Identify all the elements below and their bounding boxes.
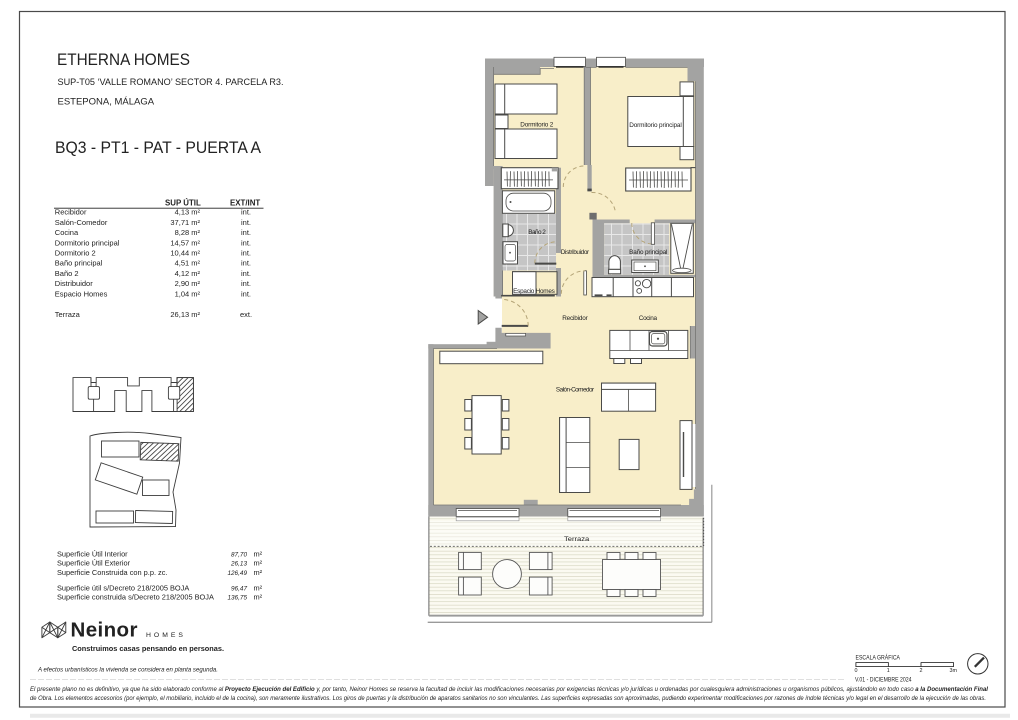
svg-text:Cocina: Cocina (639, 315, 658, 322)
svg-text:SUP ÚTIL: SUP ÚTIL (165, 199, 201, 208)
svg-text:4,12 m²: 4,12 m² (175, 269, 201, 278)
svg-text:int.: int. (241, 289, 251, 298)
svg-text:Superficie Útil Exterior: Superficie Útil Exterior (57, 559, 131, 568)
svg-text:BQ3 - PT1 - PAT - PUERTA A: BQ3 - PT1 - PAT - PUERTA A (55, 139, 261, 157)
svg-text:A efectos urbanísticos la vivi: A efectos urbanísticos la vivienda se co… (37, 666, 218, 673)
svg-text:ESTEPONA, MÁLAGA: ESTEPONA, MÁLAGA (58, 97, 155, 108)
svg-text:Dormitorio 2: Dormitorio 2 (520, 122, 553, 129)
svg-text:Distribuidor: Distribuidor (55, 279, 93, 288)
svg-text:126,49: 126,49 (227, 570, 247, 577)
svg-text:m²: m² (254, 584, 263, 593)
svg-text:int.: int. (241, 259, 251, 268)
svg-text:Dormitorio principal: Dormitorio principal (55, 238, 120, 247)
svg-text:Espacio Homes: Espacio Homes (55, 289, 108, 298)
svg-text:Baño 2: Baño 2 (528, 229, 546, 236)
svg-text:Salón-Comedor: Salón-Comedor (556, 387, 595, 394)
svg-text:Superficie construida s/Decret: Superficie construida s/Decreto 218/2005… (57, 593, 214, 602)
svg-text:V.01 - DICIEMBRE 2024: V.01 - DICIEMBRE 2024 (855, 676, 912, 683)
svg-text:ESCALA GRÁFICA: ESCALA GRÁFICA (856, 653, 901, 662)
svg-text:4,13 m²: 4,13 m² (175, 208, 201, 217)
svg-text:Salón-Comedor: Salón-Comedor (55, 218, 108, 227)
svg-text:2,90 m²: 2,90 m² (175, 279, 201, 288)
svg-text:2: 2 (920, 668, 923, 674)
svg-text:96,47: 96,47 (231, 586, 247, 593)
svg-text:26,13: 26,13 (230, 561, 247, 568)
svg-text:int.: int. (241, 279, 251, 288)
svg-text:Cocina: Cocina (55, 228, 79, 237)
svg-text:37,71 m²: 37,71 m² (170, 218, 200, 227)
svg-text:1: 1 (887, 668, 890, 674)
svg-text:10,44 m²: 10,44 m² (170, 249, 200, 258)
svg-text:int.: int. (241, 218, 251, 227)
svg-text:m²: m² (254, 549, 263, 558)
svg-text:4,51 m²: 4,51 m² (175, 259, 201, 268)
svg-text:Baño principal: Baño principal (629, 249, 667, 256)
svg-text:Construimos casas pensando en: Construimos casas pensando en personas. (72, 644, 224, 653)
svg-text:m²: m² (254, 559, 263, 568)
svg-text:HOMES: HOMES (146, 632, 186, 639)
svg-text:Superficie Construida con p.p.: Superficie Construida con p.p. zc. (57, 568, 168, 577)
svg-text:Baño principal: Baño principal (55, 259, 103, 268)
svg-text:ETHERNA HOMES: ETHERNA HOMES (57, 51, 190, 69)
svg-text:EXT/INT: EXT/INT (230, 199, 260, 208)
svg-text:Neinor: Neinor (71, 619, 138, 642)
svg-text:8,28 m²: 8,28 m² (175, 228, 201, 237)
svg-text:int.: int. (241, 238, 251, 247)
svg-text:El presente plano no es defini: El presente plano no es definitivo, ya q… (30, 686, 988, 693)
svg-text:1,04 m²: 1,04 m² (175, 289, 201, 298)
svg-text:0: 0 (855, 668, 858, 674)
svg-text:de Obra. Los elementos accesor: de Obra. Los elementos accesorios (por e… (30, 695, 986, 702)
svg-text:m²: m² (254, 568, 263, 577)
svg-text:Terraza: Terraza (564, 536, 590, 543)
svg-text:3m: 3m (950, 668, 958, 674)
svg-text:ext.: ext. (240, 310, 252, 319)
svg-text:Baño 2: Baño 2 (55, 269, 79, 278)
svg-text:int.: int. (241, 269, 251, 278)
svg-text:SUP-T05 ‘VALLE ROMANO’ SECTOR: SUP-T05 ‘VALLE ROMANO’ SECTOR 4. PARCELA… (58, 77, 284, 88)
svg-text:int.: int. (241, 249, 251, 258)
svg-text:136,75: 136,75 (227, 595, 247, 602)
svg-text:int.: int. (241, 208, 251, 217)
svg-text:Espacio Homes: Espacio Homes (513, 288, 555, 295)
svg-text:Recibidor: Recibidor (562, 315, 588, 322)
svg-text:m²: m² (254, 593, 263, 602)
svg-text:Dormitorio principal: Dormitorio principal (629, 122, 682, 129)
svg-text:int.: int. (241, 228, 251, 237)
svg-text:26,13 m²: 26,13 m² (170, 310, 200, 319)
svg-text:87,70: 87,70 (231, 551, 247, 558)
svg-text:Distribuidor: Distribuidor (561, 249, 590, 256)
svg-text:Superficie Útil Interior: Superficie Útil Interior (57, 549, 128, 558)
svg-text:Terraza: Terraza (55, 310, 81, 319)
svg-text:Dormitorio 2: Dormitorio 2 (55, 249, 96, 258)
svg-text:Superficie útil s/Decreto 218/: Superficie útil s/Decreto 218/2005 BOJA (57, 584, 189, 593)
svg-text:Recibidor: Recibidor (55, 208, 87, 217)
svg-text:14,57 m²: 14,57 m² (170, 238, 200, 247)
